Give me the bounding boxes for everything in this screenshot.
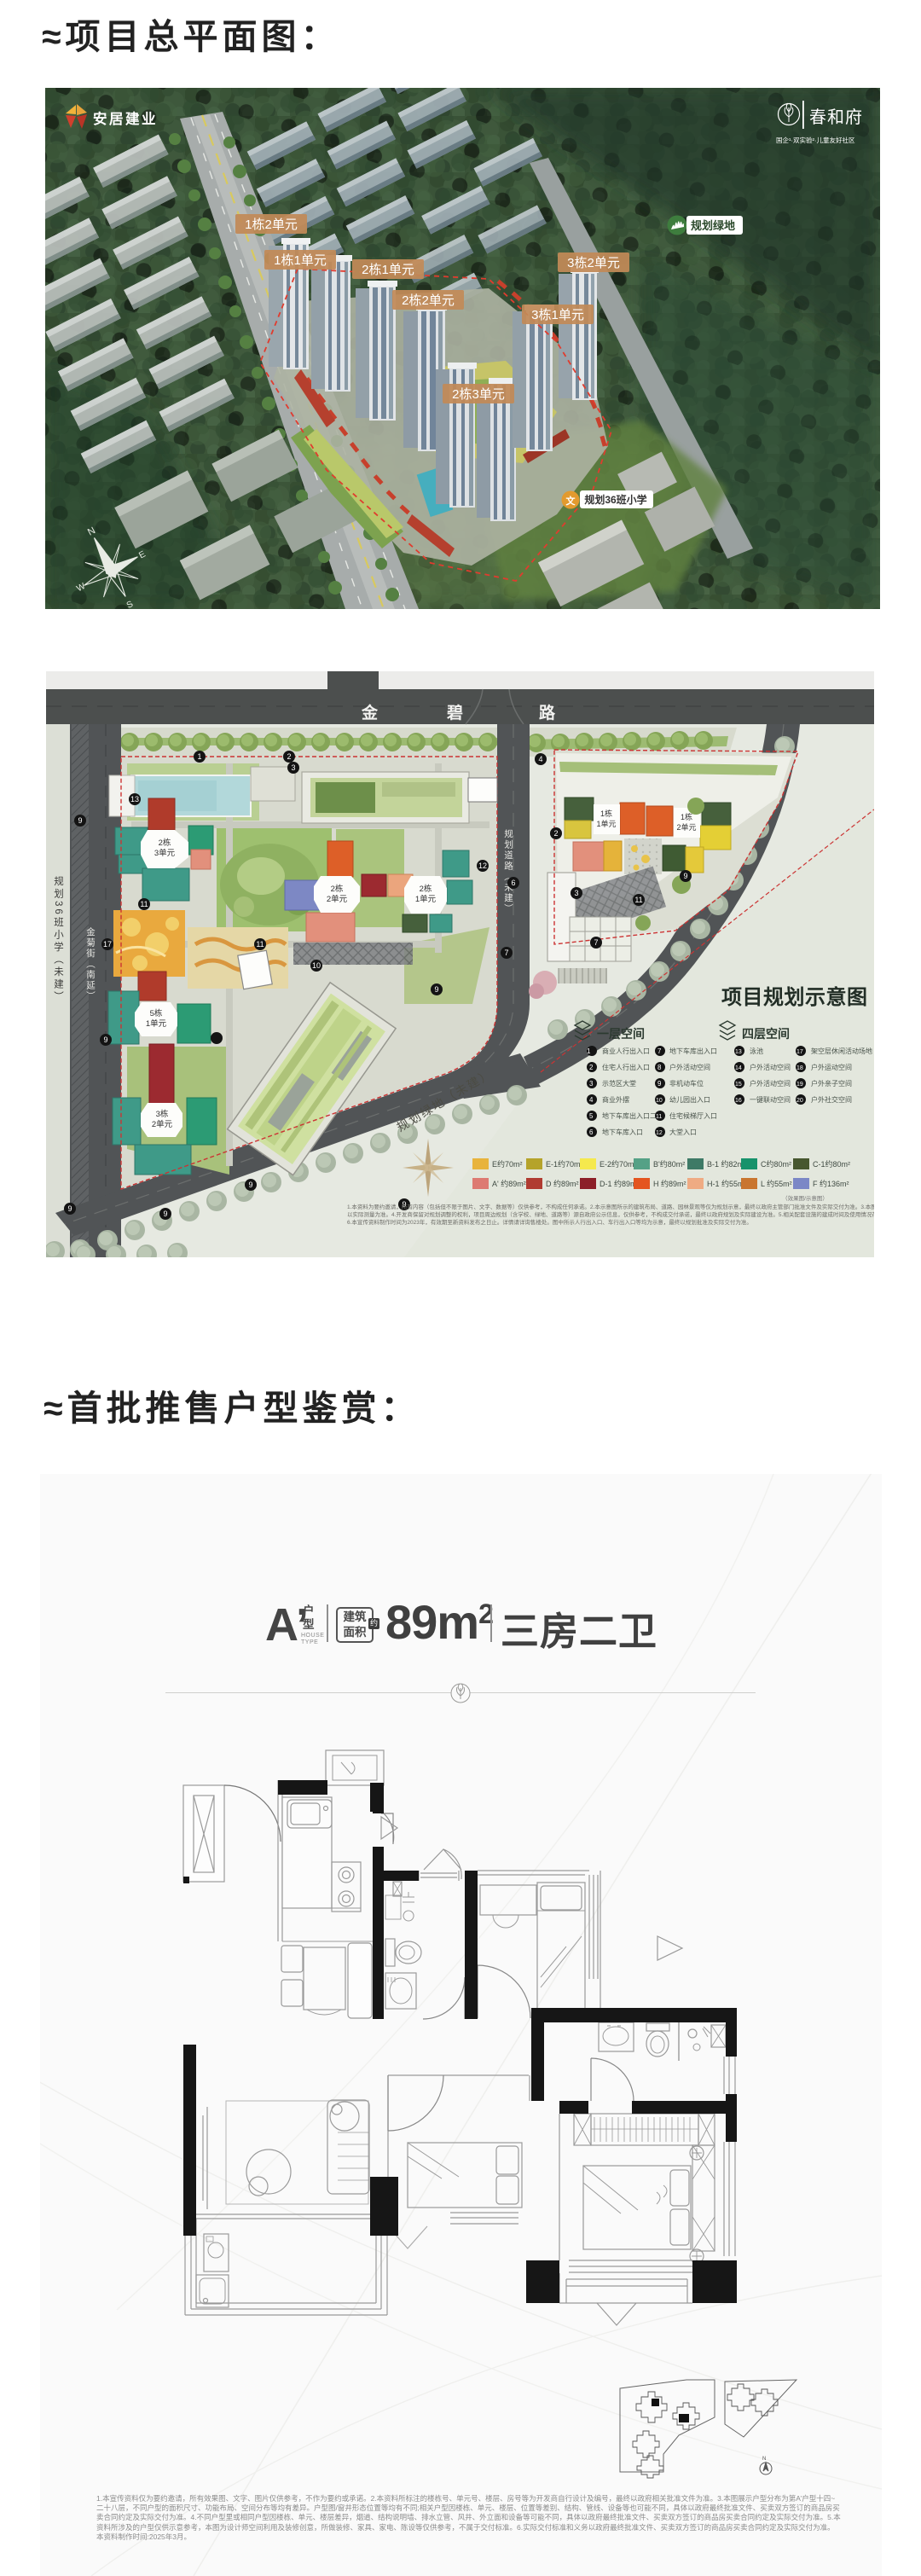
svg-text:规划36班小学（未建）: 规划36班小学（未建） <box>53 875 64 1003</box>
svg-text:地下车库入口: 地下车库入口 <box>602 1128 643 1136</box>
svg-text:16: 16 <box>735 1098 742 1104</box>
svg-text:E约70m²: E约70m² <box>492 1159 523 1169</box>
svg-text:2单元: 2单元 <box>676 822 696 832</box>
svg-text:文: 文 <box>566 495 576 507</box>
svg-text:7: 7 <box>657 1047 662 1055</box>
svg-text:规划绿地: 规划绿地 <box>691 219 735 232</box>
svg-text:1单元: 1单元 <box>596 819 616 828</box>
svg-text:9: 9 <box>434 985 438 994</box>
svg-text:1栋: 1栋 <box>681 812 692 821</box>
svg-text:示范区大堂: 示范区大堂 <box>602 1079 636 1088</box>
svg-text:A' 约89m²: A' 约89m² <box>492 1179 526 1188</box>
svg-text:2栋1单元: 2栋1单元 <box>362 262 414 277</box>
svg-text:12: 12 <box>656 1130 663 1136</box>
svg-text:大堂入口: 大堂入口 <box>669 1128 697 1136</box>
svg-text:2栋3单元: 2栋3单元 <box>452 386 505 402</box>
svg-text:3栋1单元: 3栋1单元 <box>531 307 584 322</box>
svg-text:户外运动空间: 户外运动空间 <box>811 1063 852 1071</box>
svg-text:1栋1单元: 1栋1单元 <box>274 252 327 268</box>
svg-text:3栋: 3栋 <box>156 1109 169 1119</box>
svg-text:15: 15 <box>735 1082 742 1088</box>
svg-text:N: N <box>762 2457 766 2462</box>
svg-text:11: 11 <box>140 900 148 908</box>
svg-text:户外亲子空间: 户外亲子空间 <box>811 1079 852 1088</box>
svg-text:3单元: 3单元 <box>154 848 176 858</box>
svg-text:8: 8 <box>657 1064 662 1071</box>
svg-text:9: 9 <box>67 1204 72 1213</box>
svg-text:住宅候梯厅入口: 住宅候梯厅入口 <box>669 1111 717 1120</box>
svg-text:5栋: 5栋 <box>150 1008 163 1018</box>
svg-text:以实际测量为准。4.开发商保留对规划调整的权利，项目周边规划: 以实际测量为准。4.开发商保留对规划调整的权利，项目周边规划（含学校、绿地、道路… <box>347 1210 874 1218</box>
svg-text:一键联动空间: 一键联动空间 <box>750 1095 791 1104</box>
svg-text:住宅人行出入口: 住宅人行出入口 <box>602 1063 650 1071</box>
svg-text:2栋: 2栋 <box>420 884 432 894</box>
svg-text:9: 9 <box>78 816 82 825</box>
svg-text:12: 12 <box>478 862 487 870</box>
svg-text:2: 2 <box>287 752 291 761</box>
svg-text:1单元: 1单元 <box>415 894 437 904</box>
svg-text:商业外摆: 商业外摆 <box>602 1095 629 1104</box>
svg-text:2栋2单元: 2栋2单元 <box>402 293 455 308</box>
svg-text:3栋2单元: 3栋2单元 <box>567 255 620 270</box>
svg-text:9: 9 <box>103 1036 107 1044</box>
svg-text:17: 17 <box>796 1049 803 1055</box>
svg-text:2栋: 2栋 <box>159 838 171 848</box>
svg-text:D 约89m²: D 约89m² <box>546 1179 579 1188</box>
svg-text:C-1约80m²: C-1约80m² <box>813 1159 850 1169</box>
svg-text:11: 11 <box>656 1114 662 1120</box>
svg-text:B-1 约82m²: B-1 约82m² <box>707 1159 746 1169</box>
svg-text:4: 4 <box>538 755 542 763</box>
svg-text:11: 11 <box>256 940 264 949</box>
svg-text:地下车库出入口: 地下车库出入口 <box>669 1047 717 1055</box>
svg-text:2: 2 <box>589 1064 594 1071</box>
svg-text:F 约136m²: F 约136m² <box>813 1179 849 1188</box>
svg-text:6: 6 <box>511 879 515 887</box>
svg-text:四层空间: 四层空间 <box>742 1027 790 1041</box>
svg-text:13: 13 <box>735 1049 742 1055</box>
svg-text:4: 4 <box>589 1096 594 1104</box>
svg-text:地下车库出入口二: 地下车库出入口二 <box>602 1111 657 1120</box>
svg-text:1: 1 <box>197 752 201 761</box>
svg-text:2: 2 <box>553 829 558 838</box>
svg-text:1栋2单元: 1栋2单元 <box>245 217 298 232</box>
svg-text:国企¹·双实验²·儿童友好社区: 国企¹·双实验²·儿童友好社区 <box>776 136 855 144</box>
svg-text:安居建业: 安居建业 <box>93 110 158 127</box>
svg-text:规划道路（未建）: 规划道路（未建） <box>503 828 513 914</box>
svg-text:规划36班小学: 规划36班小学 <box>584 493 646 506</box>
svg-text:7: 7 <box>594 938 598 947</box>
svg-text:5: 5 <box>589 1112 594 1120</box>
svg-text:架空层休闲活动场地: 架空层休闲活动场地 <box>811 1047 872 1055</box>
svg-text:春和府: 春和府 <box>809 107 863 127</box>
svg-text:L 约55m²: L 约55m² <box>761 1179 792 1188</box>
svg-text:H 约89m²: H 约89m² <box>653 1179 686 1188</box>
svg-text:9: 9 <box>163 1210 167 1218</box>
svg-text:6.本宣传资料制作时间为2023年，有效期至新资料发布之日止: 6.本宣传资料制作时间为2023年，有效期至新资料发布之日止。详情请详询售楼处。… <box>347 1218 752 1226</box>
svg-text:E-2约70m²: E-2约70m² <box>600 1159 637 1169</box>
svg-text:户外活动空间: 户外活动空间 <box>750 1063 791 1071</box>
svg-text:6: 6 <box>589 1128 594 1136</box>
svg-text:17: 17 <box>103 940 112 949</box>
svg-text:商业人行出入口: 商业人行出入口 <box>602 1047 650 1055</box>
svg-text:金菊街（南延）: 金菊街（南延） <box>85 926 96 1001</box>
svg-text:D-1 约89m²: D-1 约89m² <box>600 1179 640 1188</box>
svg-text:项目规划示意图: 项目规划示意图 <box>721 985 868 1009</box>
svg-text:（效果图/示意图）: （效果图/示意图） <box>782 1194 828 1202</box>
svg-text:H-1 约55m²: H-1 约55m² <box>707 1179 747 1188</box>
svg-text:幼儿园出入口: 幼儿园出入口 <box>669 1095 710 1104</box>
svg-text:14: 14 <box>735 1065 742 1071</box>
svg-text:10: 10 <box>312 961 321 970</box>
svg-text:户外社交空间: 户外社交空间 <box>811 1095 852 1104</box>
svg-text:3: 3 <box>574 889 578 897</box>
svg-text:碧: 碧 <box>446 703 463 722</box>
svg-text:金: 金 <box>361 703 379 722</box>
svg-text:1栋: 1栋 <box>600 809 612 818</box>
svg-text:19: 19 <box>796 1082 803 1088</box>
svg-text:7: 7 <box>504 949 508 957</box>
svg-text:2单元: 2单元 <box>152 1119 173 1129</box>
svg-text:户外活动空间: 户外活动空间 <box>669 1063 710 1071</box>
svg-text:B'约80m²: B'约80m² <box>653 1159 685 1169</box>
svg-text:一层空间: 一层空间 <box>597 1027 645 1041</box>
svg-text:1单元: 1单元 <box>146 1018 167 1029</box>
svg-text:3: 3 <box>589 1080 594 1088</box>
svg-text:1.本资料为要约邀请，所有内容（包括但不限于图片、文字、数据: 1.本资料为要约邀请，所有内容（包括但不限于图片、文字、数据等）仅供参考，不构成… <box>347 1203 874 1210</box>
svg-text:9: 9 <box>657 1080 662 1088</box>
svg-text:C约80m²: C约80m² <box>761 1159 791 1169</box>
svg-text:2栋: 2栋 <box>331 884 344 894</box>
svg-text:2单元: 2单元 <box>327 894 348 904</box>
svg-text:9: 9 <box>683 872 687 880</box>
svg-text:18: 18 <box>796 1065 803 1071</box>
svg-text:9: 9 <box>248 1181 252 1189</box>
svg-text:非机动车位: 非机动车位 <box>669 1079 704 1088</box>
svg-text:20: 20 <box>796 1098 803 1104</box>
svg-text:1: 1 <box>587 1047 591 1055</box>
svg-text:E-1约70m²: E-1约70m² <box>546 1159 583 1169</box>
svg-text:泳池: 泳池 <box>750 1047 763 1055</box>
svg-text:10: 10 <box>656 1098 663 1104</box>
svg-text:3: 3 <box>291 763 295 772</box>
svg-text:13: 13 <box>130 795 139 804</box>
svg-text:户外活动空间: 户外活动空间 <box>750 1079 791 1088</box>
svg-text:路: 路 <box>539 703 556 722</box>
svg-text:11: 11 <box>634 896 642 904</box>
